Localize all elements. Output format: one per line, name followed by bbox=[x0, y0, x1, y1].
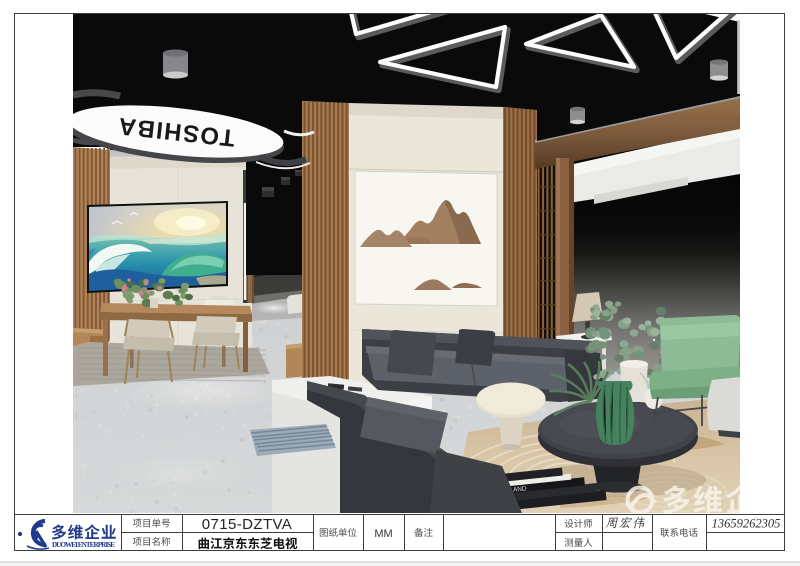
svg-text:DUOWEI ENTERPRISE: DUOWEI ENTERPRISE bbox=[52, 541, 115, 549]
svg-text:MM: MM bbox=[374, 528, 392, 540]
svg-text:AND: AND bbox=[513, 485, 528, 493]
svg-text:0715-DZTVA: 0715-DZTVA bbox=[202, 516, 292, 533]
svg-text:13659262305: 13659262305 bbox=[712, 517, 781, 531]
